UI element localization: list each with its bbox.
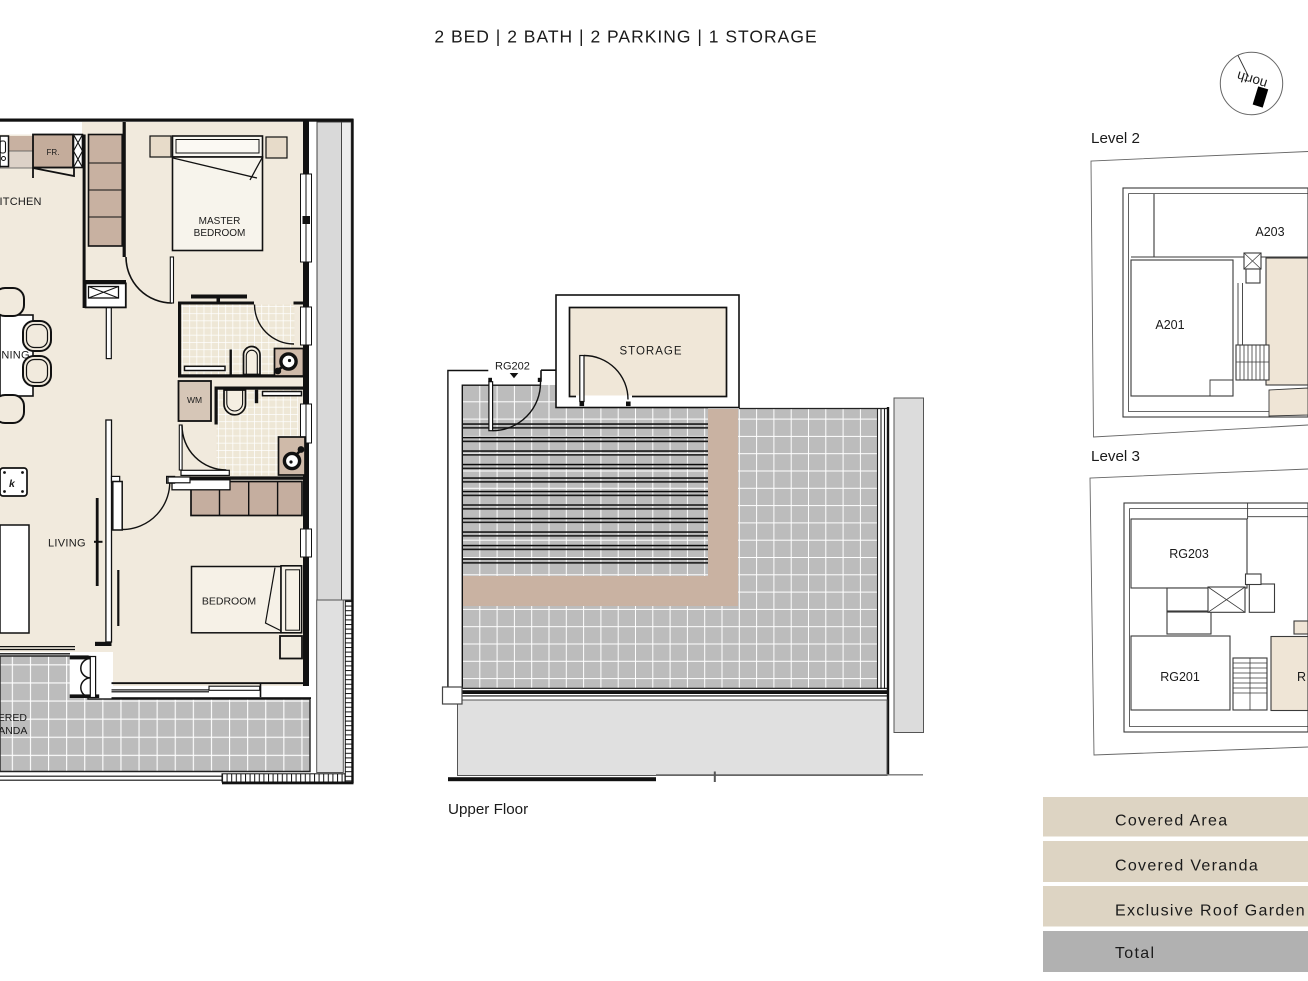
svg-text:Covered Area: Covered Area: [1115, 813, 1228, 830]
svg-text:RG202: RG202: [495, 361, 530, 373]
svg-text:RG201: RG201: [1160, 670, 1200, 684]
svg-text:A203: A203: [1255, 225, 1284, 239]
svg-text:Exclusive Roof Garden: Exclusive Roof Garden: [1115, 903, 1306, 920]
svg-text:Level 3: Level 3: [1091, 448, 1140, 465]
svg-text:R: R: [1297, 670, 1306, 684]
svg-text:STORAGE: STORAGE: [619, 346, 682, 358]
svg-text:Covered Veranda: Covered Veranda: [1115, 858, 1259, 875]
svg-text:WM: WM: [187, 395, 202, 405]
svg-text:MASTER: MASTER: [199, 216, 241, 227]
svg-text:Total: Total: [1115, 945, 1155, 962]
svg-text:FR.: FR.: [47, 148, 60, 157]
svg-text:2 BED | 2 BATH | 2 PARKING | 1: 2 BED | 2 BATH | 2 PARKING | 1 STORAGE: [434, 27, 817, 47]
svg-text:Level 2: Level 2: [1091, 130, 1140, 147]
svg-text:LIVING: LIVING: [48, 538, 86, 550]
svg-text:KITCHEN: KITCHEN: [0, 196, 42, 208]
svg-text:RG203: RG203: [1169, 547, 1209, 561]
svg-text:BEDROOM: BEDROOM: [194, 228, 246, 239]
svg-text:VERANDA: VERANDA: [0, 725, 27, 737]
svg-text:BEDROOM: BEDROOM: [202, 596, 256, 608]
svg-text:Upper Floor: Upper Floor: [448, 801, 528, 818]
svg-text:COVERED: COVERED: [0, 712, 27, 724]
svg-text:DINING: DINING: [0, 350, 30, 362]
svg-text:A201: A201: [1155, 318, 1184, 332]
